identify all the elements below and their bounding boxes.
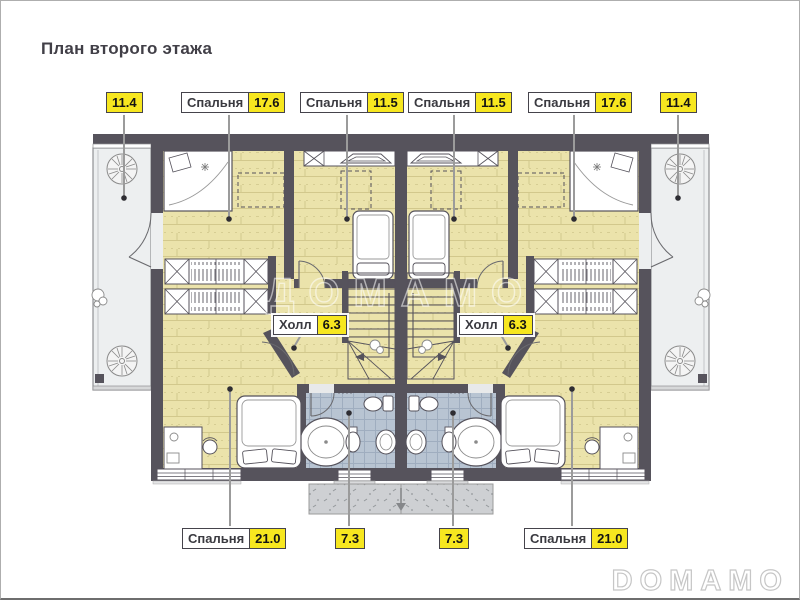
- area-value: 11.4: [107, 93, 142, 112]
- room-name: Спальня: [182, 93, 248, 112]
- area-value: 21.0: [591, 529, 627, 548]
- room-label-bedroom-21-0-right: Спальня 21.0: [524, 528, 628, 549]
- right-unit: [401, 134, 710, 514]
- room-name: Холл: [460, 316, 503, 334]
- room-label-bedroom-17-6-right: Спальня 17.6: [528, 92, 632, 113]
- area-value: 7.3: [336, 529, 364, 548]
- room-name: Спальня: [525, 529, 591, 548]
- area-value: 11.4: [661, 93, 696, 112]
- room-label-bedroom-11-5-left: Спальня 11.5: [300, 92, 404, 113]
- room-name: Спальня: [409, 93, 475, 112]
- room-name: Спальня: [183, 529, 249, 548]
- area-value: 6.3: [317, 316, 346, 334]
- plan-watermark: ДОМАМО: [266, 271, 536, 315]
- room-name: Спальня: [529, 93, 595, 112]
- area-label-bathroom-left: 7.3: [335, 528, 365, 549]
- area-value: 11.5: [367, 93, 403, 112]
- area-value: 17.6: [248, 93, 284, 112]
- area-value: 11.5: [475, 93, 511, 112]
- area-value: 21.0: [249, 529, 285, 548]
- room-label-hall-left: Холл 6.3: [273, 315, 347, 335]
- area-label-balcony-right: 11.4: [660, 92, 697, 113]
- area-value: 7.3: [440, 529, 468, 548]
- area-value: 6.3: [503, 316, 532, 334]
- left-unit: [92, 134, 401, 514]
- area-label-balcony-left: 11.4: [106, 92, 143, 113]
- floor-plan-drawing: ДОМАМО DOMAMO: [1, 1, 800, 600]
- room-name: Спальня: [301, 93, 367, 112]
- room-label-hall-right: Холл 6.3: [459, 315, 533, 335]
- room-label-bedroom-11-5-right: Спальня 11.5: [408, 92, 512, 113]
- room-label-bedroom-17-6-left: Спальня 17.6: [181, 92, 285, 113]
- brand-watermark: DOMAMO: [612, 565, 789, 597]
- room-name: Холл: [274, 316, 317, 334]
- floor-plan-page: План второго этажа: [0, 0, 800, 600]
- room-label-bedroom-21-0-left: Спальня 21.0: [182, 528, 286, 549]
- area-value: 17.6: [595, 93, 631, 112]
- area-label-bathroom-right: 7.3: [439, 528, 469, 549]
